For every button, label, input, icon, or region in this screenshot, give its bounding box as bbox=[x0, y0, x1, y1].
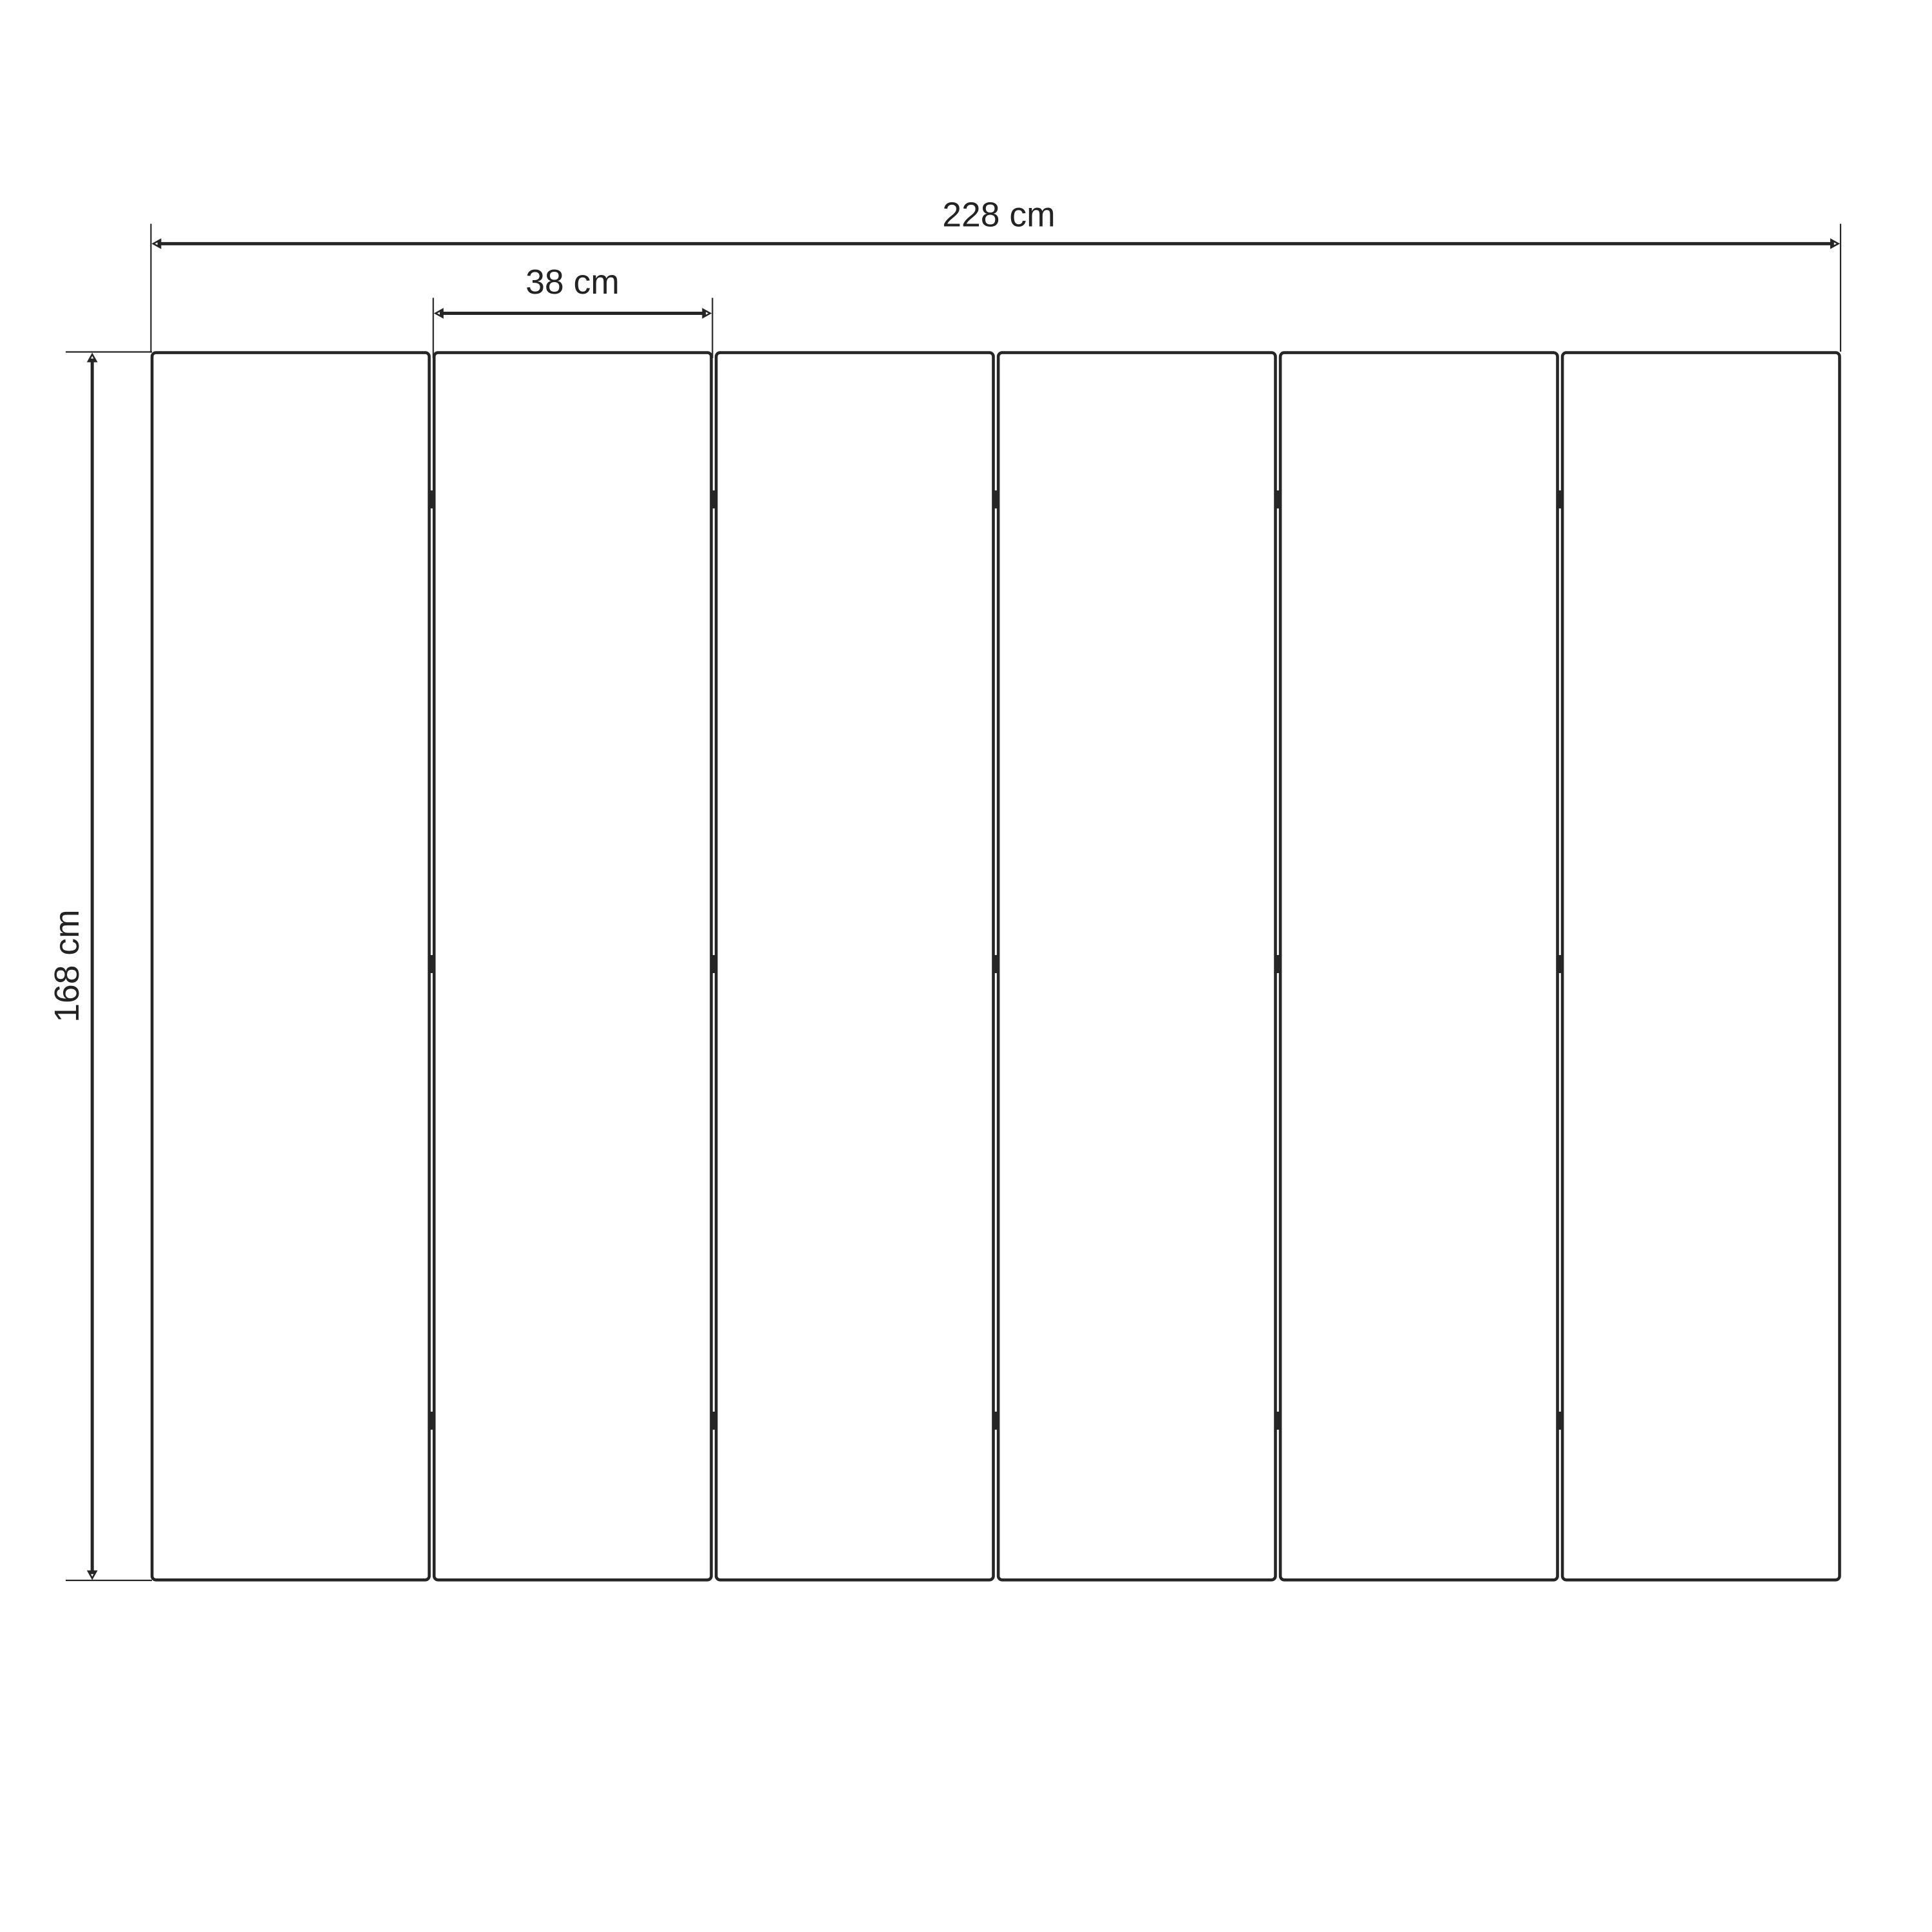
svg-text:228 cm: 228 cm bbox=[942, 196, 1055, 234]
svg-text:168 cm: 168 cm bbox=[48, 909, 86, 1022]
svg-text:38 cm: 38 cm bbox=[526, 263, 620, 301]
